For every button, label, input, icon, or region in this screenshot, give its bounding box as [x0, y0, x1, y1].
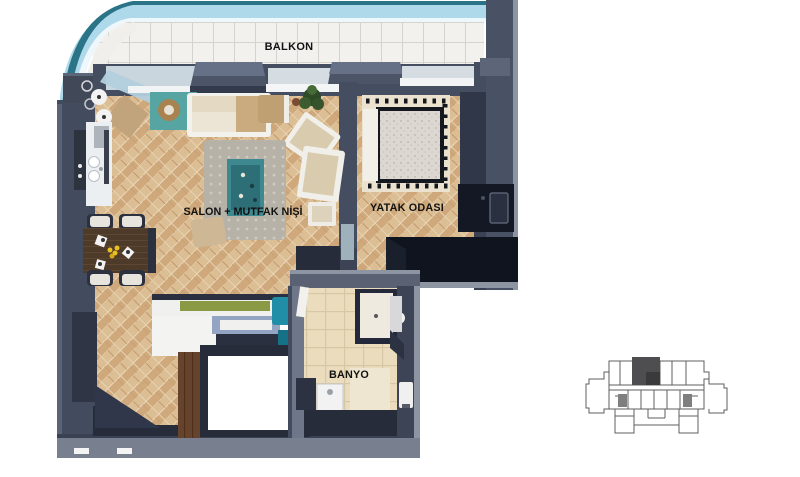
svg-text:YATAK ODASI: YATAK ODASI [370, 202, 444, 214]
svg-text:SALON + MUTFAK NİŞİ: SALON + MUTFAK NİŞİ [183, 205, 302, 218]
svg-text:BANYO: BANYO [329, 369, 369, 381]
svg-text:BALKON: BALKON [265, 41, 314, 53]
